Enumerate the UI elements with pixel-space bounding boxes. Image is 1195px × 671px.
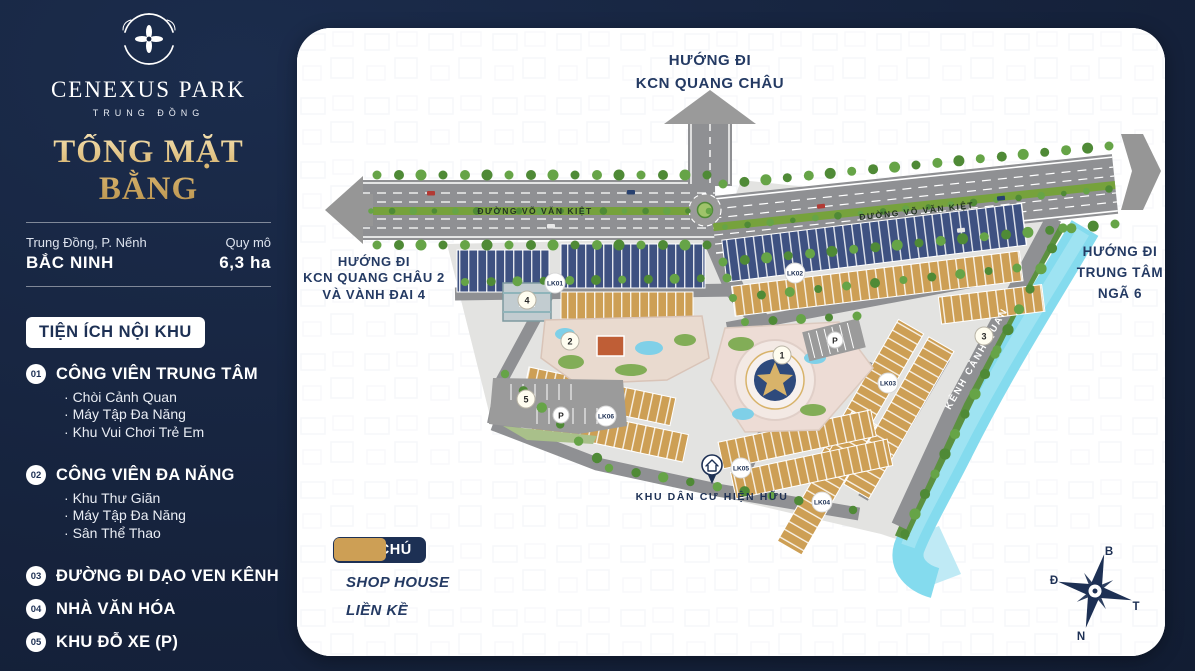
amenities-list: 01 CÔNG VIÊN TRUNG TÂM Chòi Cảnh Quan Má…	[26, 364, 297, 652]
amenity-number: 05	[26, 632, 46, 652]
legend-item-lienke: LIỀN KỀ	[333, 602, 449, 619]
compass-d: Đ	[1050, 575, 1058, 587]
block-badge-lk04: LK04	[812, 492, 832, 512]
svg-text:4: 4	[524, 296, 529, 306]
amenity-sub: Sân Thể Thao	[64, 525, 297, 542]
block-badge-lk01: LK01	[545, 273, 565, 293]
location-row: Trung Đồng, P. Nếnh BẮC NINH Quy mô 6,3 …	[26, 235, 271, 273]
amenity-sub: Khu Thư Giãn	[64, 490, 297, 507]
marker-4-community-house: 4	[518, 291, 536, 309]
svg-text:1: 1	[779, 351, 784, 361]
amenities-heading: TIỆN ÍCH NỘI KHU	[26, 317, 205, 348]
svg-text:LK03: LK03	[880, 381, 896, 388]
amenity-sub: Khu Vui Chơi Trẻ Em	[64, 424, 297, 441]
marker-5-parking: 5	[517, 390, 535, 408]
amenity-sub: Máy Tập Đa Năng	[64, 507, 297, 524]
divider	[26, 222, 271, 223]
direction-label-north: HƯỚNG ĐI KCN QUANG CHÂU	[590, 50, 830, 95]
marker-2-multipurpose-park: 2	[561, 332, 579, 350]
road-name-west: ĐƯỜNG VÕ VĂN KIỆT	[477, 205, 592, 216]
block-badge-lk06: LK06	[596, 406, 616, 426]
marker-1-central-park: 1	[773, 346, 791, 364]
svg-text:LK02: LK02	[787, 271, 803, 278]
svg-text:LK04: LK04	[814, 500, 830, 507]
brand-name: CENEXUS PARK	[0, 77, 297, 103]
parking-p-marker-west: P	[553, 407, 569, 423]
location-province: BẮC NINH	[26, 253, 147, 273]
block-badge-lk05: LK05	[731, 458, 751, 478]
svg-text:P: P	[832, 336, 838, 346]
page-title: TỔNG MẶT BẰNG	[0, 134, 297, 208]
existing-area-label: KHU DÂN CƯ HIỆN HỮU	[636, 490, 789, 503]
amenity-sub: Chòi Cảnh Quan	[64, 389, 297, 406]
amenity-item-5: 05 KHU ĐỖ XE (P)	[26, 632, 297, 652]
amenity-number: 02	[26, 465, 46, 485]
cenexus-logo-icon	[104, 10, 194, 68]
svg-text:LK05: LK05	[733, 466, 749, 473]
brand-block: CENEXUS PARK TRUNG ĐỒNG	[0, 0, 297, 118]
direction-label-west: HƯỚNG ĐI KCN QUANG CHÂU 2 VÀ VÀNH ĐAI 4	[297, 254, 463, 303]
scale-label: Quy mô	[219, 235, 271, 250]
legend-item-shophouse: SHOP HOUSE	[333, 574, 449, 591]
compass-n: N	[1077, 631, 1085, 643]
amenity-item-4: 04 NHÀ VĂN HÓA	[26, 599, 297, 619]
amenity-number: 01	[26, 364, 46, 384]
amenity-sub: Máy Tập Đa Năng	[64, 406, 297, 423]
block-badge-lk03: LK03	[878, 373, 898, 393]
legend: GHI CHÚ SHOP HOUSE LIỀN KỀ	[333, 537, 449, 619]
brand-subtitle: TRUNG ĐỒNG	[0, 108, 297, 118]
amenity-item-3: 03 ĐƯỜNG ĐI DẠO VEN KÊNH	[26, 566, 297, 586]
masterplan-card: ĐƯỜNG VÕ VĂN KIỆT ĐƯỜNG VÕ VĂN KIỆT KÊNH…	[297, 28, 1165, 656]
compass-b: B	[1105, 546, 1113, 558]
sidebar: CENEXUS PARK TRUNG ĐỒNG TỔNG MẶT BẰNG Tr…	[0, 0, 297, 671]
block-badge-lk02: LK02	[785, 263, 805, 283]
amenity-item-2: 02 CÔNG VIÊN ĐA NĂNG	[26, 465, 297, 485]
parking-p-marker-central: P	[827, 332, 843, 348]
svg-text:LK06: LK06	[598, 414, 614, 421]
amenity-item-1: 01 CÔNG VIÊN TRUNG TÂM	[26, 364, 297, 384]
scale-value: 6,3 ha	[219, 253, 271, 273]
amenity-number: 04	[26, 599, 46, 619]
svg-text:3: 3	[981, 332, 986, 342]
amenity-number: 03	[26, 566, 46, 586]
marker-3-canal-walk: 3	[975, 327, 993, 345]
svg-text:5: 5	[523, 395, 528, 405]
legend-swatch-lienke	[333, 537, 387, 562]
direction-label-east: HƯỚNG ĐI TRUNG TÂM NGÃ 6	[1050, 242, 1165, 305]
location-district: Trung Đồng, P. Nếnh	[26, 235, 147, 250]
svg-text:2: 2	[567, 337, 572, 347]
divider	[26, 286, 271, 287]
svg-text:P: P	[558, 411, 564, 421]
svg-text:LK01: LK01	[547, 281, 563, 288]
compass-t: T	[1132, 601, 1139, 613]
roundabout	[689, 194, 721, 226]
